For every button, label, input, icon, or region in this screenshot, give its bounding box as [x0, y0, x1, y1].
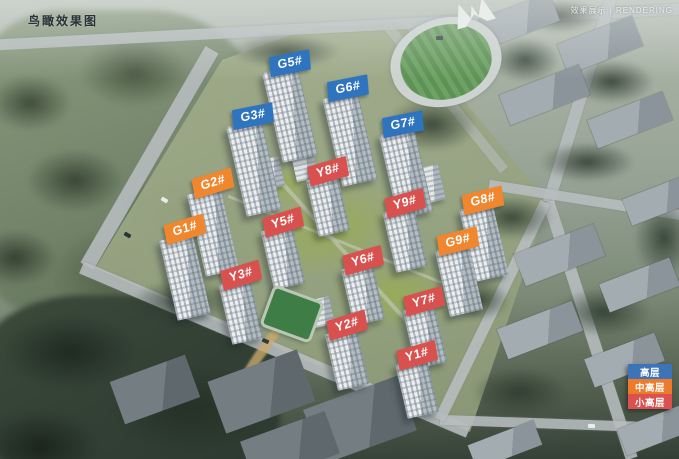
- building-type-legend: 高层中高层小高层: [628, 364, 672, 409]
- building-label-g6: G6#: [327, 74, 369, 101]
- car: [588, 424, 595, 428]
- rendering-watermark: 效果展示 | RENDERING: [570, 5, 673, 16]
- legend-item-mid-high-rise: 中高层: [628, 379, 672, 394]
- buildings-layer: G5#G6#G3#G7#Y8#G2#G8#Y9#Y5#G1#G9#Y6#Y3#Y…: [0, 0, 679, 459]
- aerial-rendering-scene: G5#G6#G3#G7#Y8#G2#G8#Y9#Y5#G1#G9#Y6#Y3#Y…: [0, 0, 679, 459]
- building-label-g3: G3#: [232, 102, 274, 129]
- building-label-g7: G7#: [382, 110, 424, 137]
- legend-item-high-rise: 高层: [628, 364, 672, 379]
- building-label-g5: G5#: [269, 49, 311, 76]
- building-tower-g3: [226, 119, 282, 217]
- page-title: 鸟瞰效果图: [28, 12, 98, 29]
- legend-item-small-high-rise: 小高层: [628, 394, 672, 409]
- car: [436, 36, 443, 40]
